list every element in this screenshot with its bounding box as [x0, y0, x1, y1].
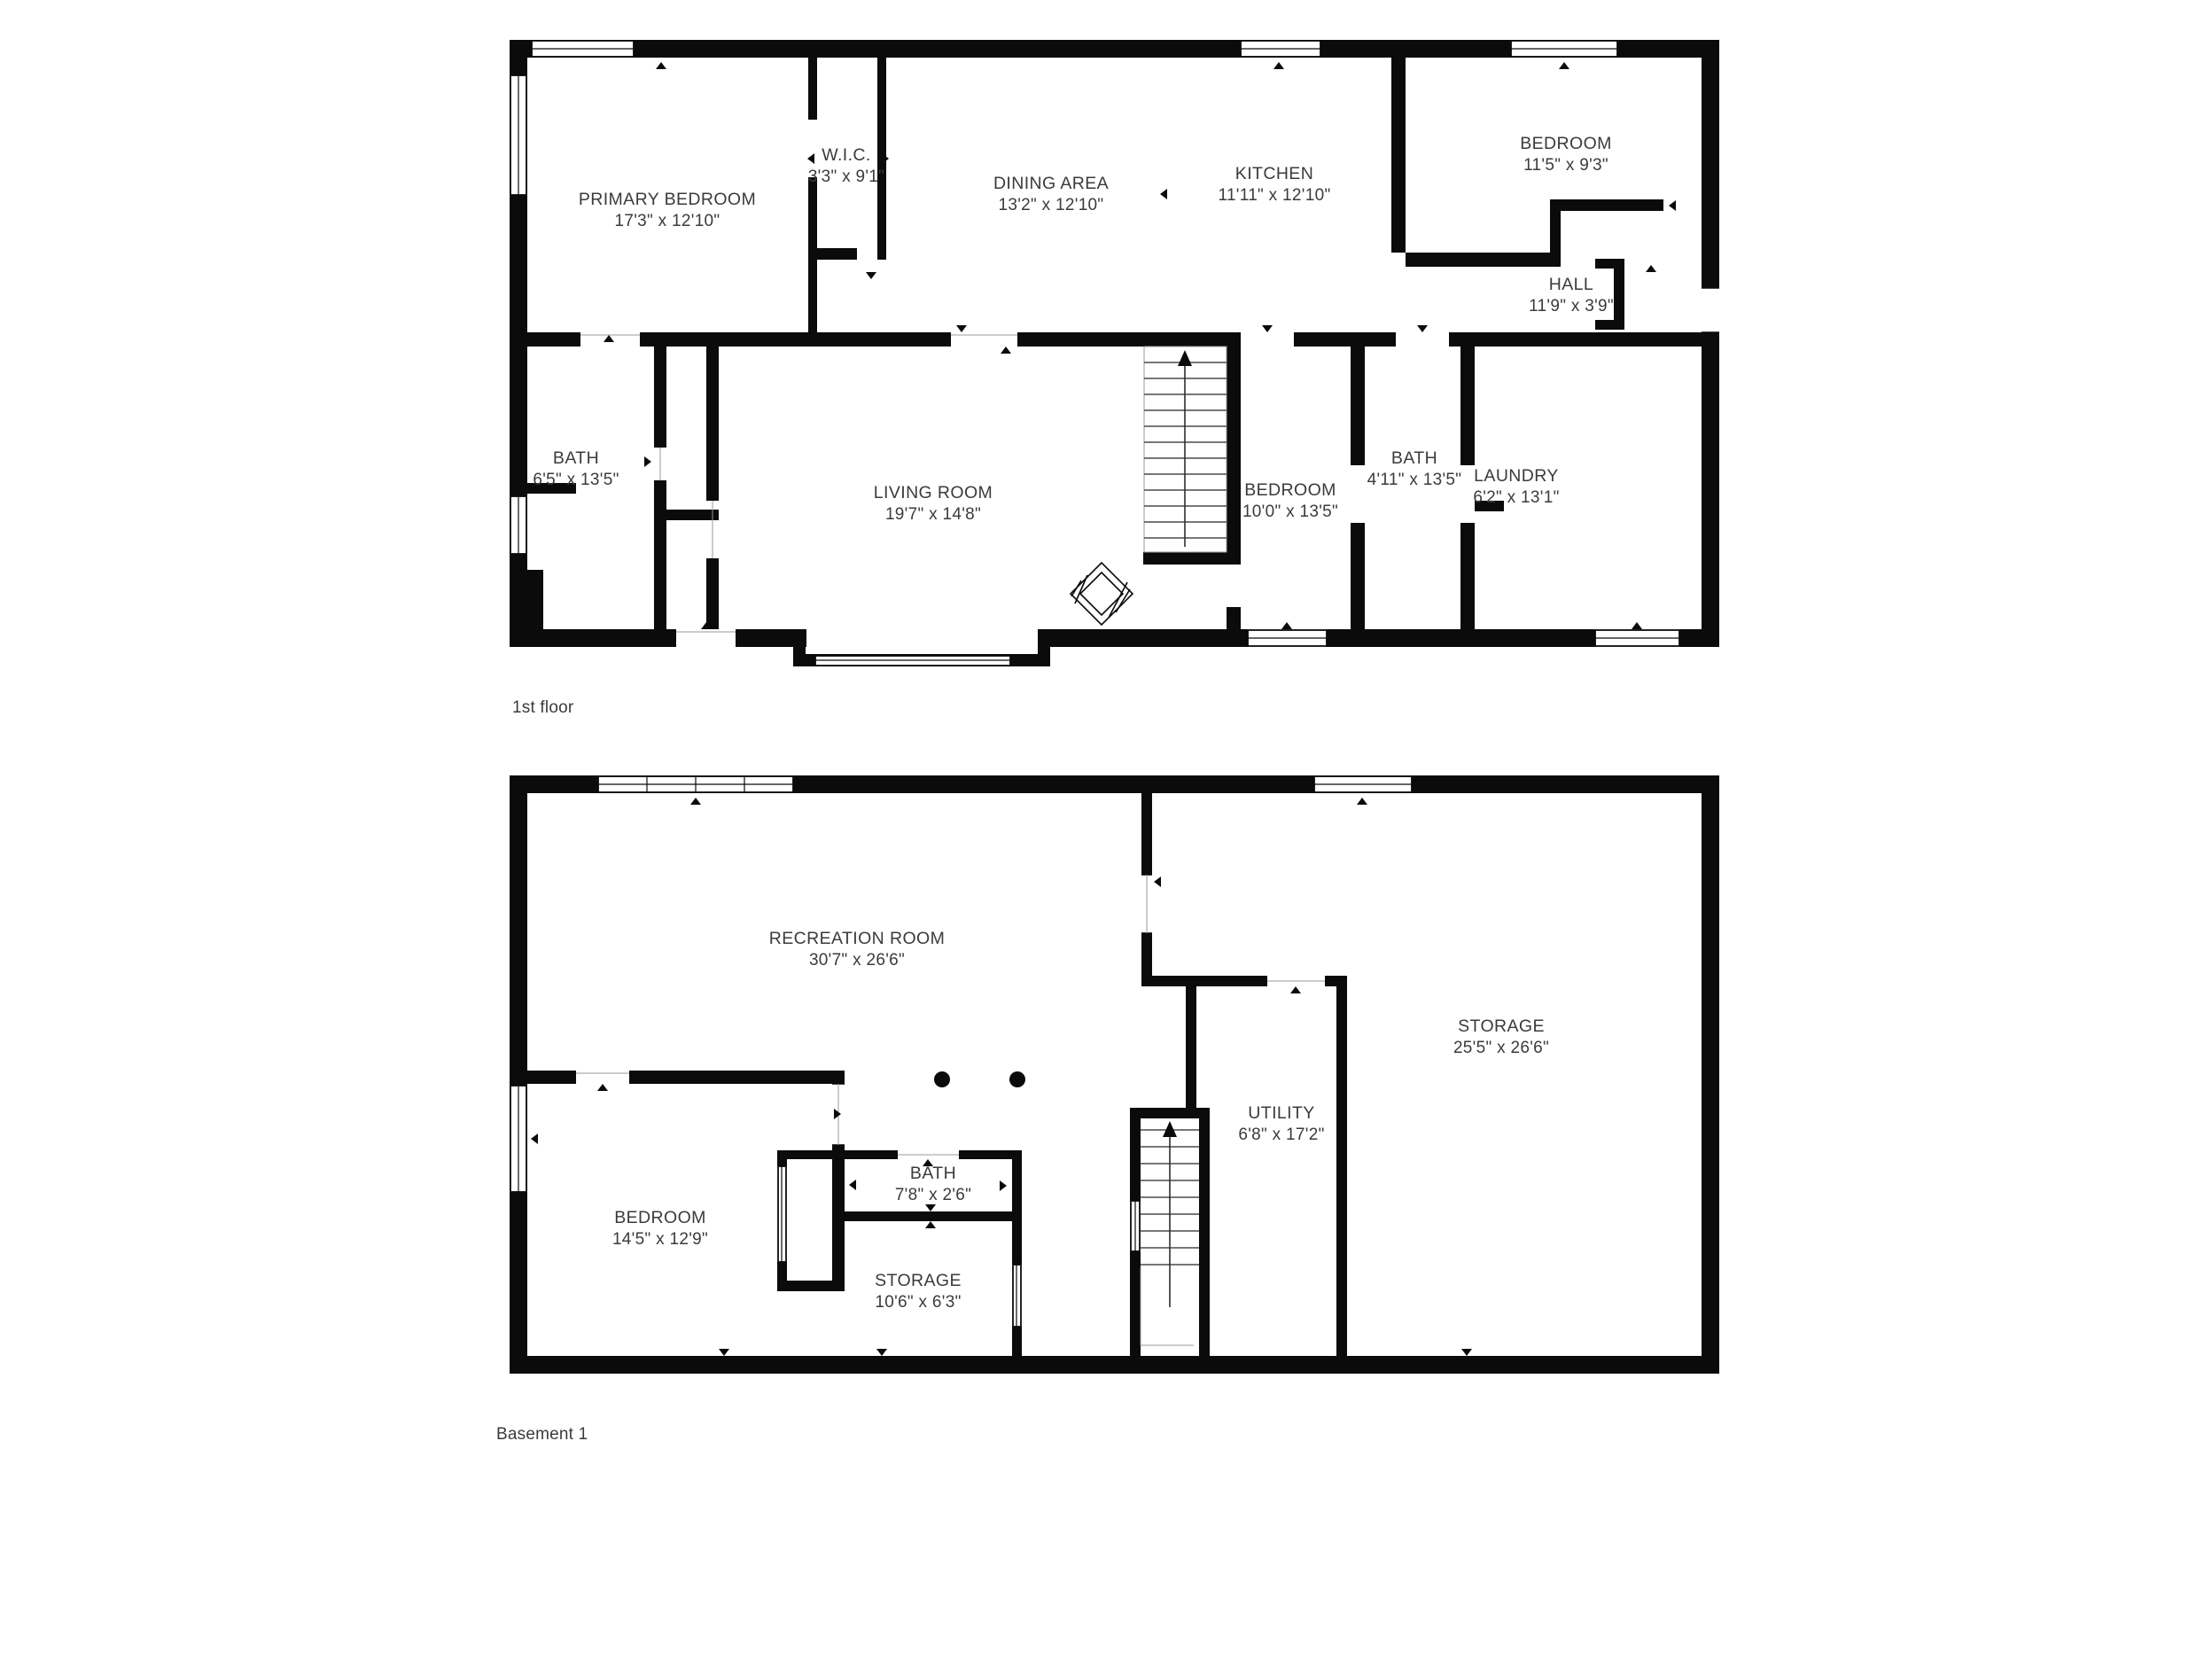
basement-walls: [510, 775, 1719, 1374]
room-label: LIVING ROOM: [874, 483, 993, 502]
room-dims: 4'11" x 13'5": [1367, 471, 1462, 489]
floor-plan-page: PRIMARY BEDROOM 17'3" x 12'10" W.I.C. 3'…: [0, 0, 2212, 1659]
room-label: STORAGE: [1458, 1016, 1545, 1036]
room-dims: 6'5" x 13'5": [533, 471, 619, 489]
room-label: BEDROOM: [1244, 480, 1336, 500]
room-label: LAUNDRY: [1474, 466, 1559, 486]
basement-room-labels: RECREATION ROOM 30'7" x 26'6" STORAGE 25…: [612, 929, 1549, 1312]
room-dims: 11'9" x 3'9": [1529, 297, 1614, 315]
room-label: STORAGE: [875, 1271, 962, 1290]
room-dims: 19'7" x 14'8": [885, 505, 981, 524]
room-label: BATH: [553, 448, 599, 468]
room-dims: 11'5" x 9'3": [1523, 156, 1608, 175]
room-label: W.I.C.: [822, 145, 870, 165]
compass-icon: [1071, 563, 1133, 625]
basement-stairs: [1141, 1121, 1199, 1345]
first-floor-stairs: [1144, 347, 1227, 552]
room-label: RECREATION ROOM: [769, 929, 945, 948]
room-label: DINING AREA: [993, 174, 1109, 193]
first-floor-room-labels: PRIMARY BEDROOM 17'3" x 12'10" W.I.C. 3'…: [533, 134, 1614, 524]
first-floor-caption: 1st floor: [512, 698, 573, 718]
room-label: BATH: [1391, 448, 1437, 468]
room-label: PRIMARY BEDROOM: [579, 190, 756, 209]
room-dims: 11'11" x 12'10": [1218, 186, 1330, 205]
support-column-icon: [934, 1071, 950, 1087]
room-label: BEDROOM: [1520, 134, 1612, 153]
basement-columns: [934, 1071, 1025, 1087]
room-dims: 13'2" x 12'10": [999, 196, 1104, 214]
stairs-up-arrow-icon: [1163, 1121, 1177, 1137]
room-dims: 6'8" x 17'2": [1238, 1125, 1324, 1144]
room-dims: 30'7" x 26'6": [809, 951, 905, 970]
room-dims: 10'0" x 13'5": [1242, 502, 1338, 521]
room-dims: 25'5" x 26'6": [1453, 1039, 1549, 1057]
basement-plan: RECREATION ROOM 30'7" x 26'6" STORAGE 25…: [510, 775, 1719, 1374]
first-floor-plan: PRIMARY BEDROOM 17'3" x 12'10" W.I.C. 3'…: [510, 40, 1719, 669]
room-dims: 14'5" x 12'9": [612, 1230, 708, 1249]
room-dims: 10'6" x 6'3": [875, 1293, 961, 1312]
room-label: BATH: [910, 1164, 956, 1183]
stairs-up-arrow-icon: [1178, 350, 1192, 366]
room-label: UTILITY: [1248, 1103, 1314, 1123]
room-dims: 17'3" x 12'10": [615, 212, 720, 230]
room-dims: 3'3" x 9'1": [808, 167, 884, 186]
room-dims: 7'8" x 2'6": [895, 1186, 971, 1204]
support-column-icon: [1009, 1071, 1025, 1087]
room-label: HALL: [1549, 275, 1593, 294]
room-label: KITCHEN: [1235, 164, 1313, 183]
basement-caption: Basement 1: [496, 1425, 588, 1445]
room-label: BEDROOM: [614, 1208, 706, 1227]
room-dims: 6'2" x 13'1": [1473, 488, 1559, 507]
